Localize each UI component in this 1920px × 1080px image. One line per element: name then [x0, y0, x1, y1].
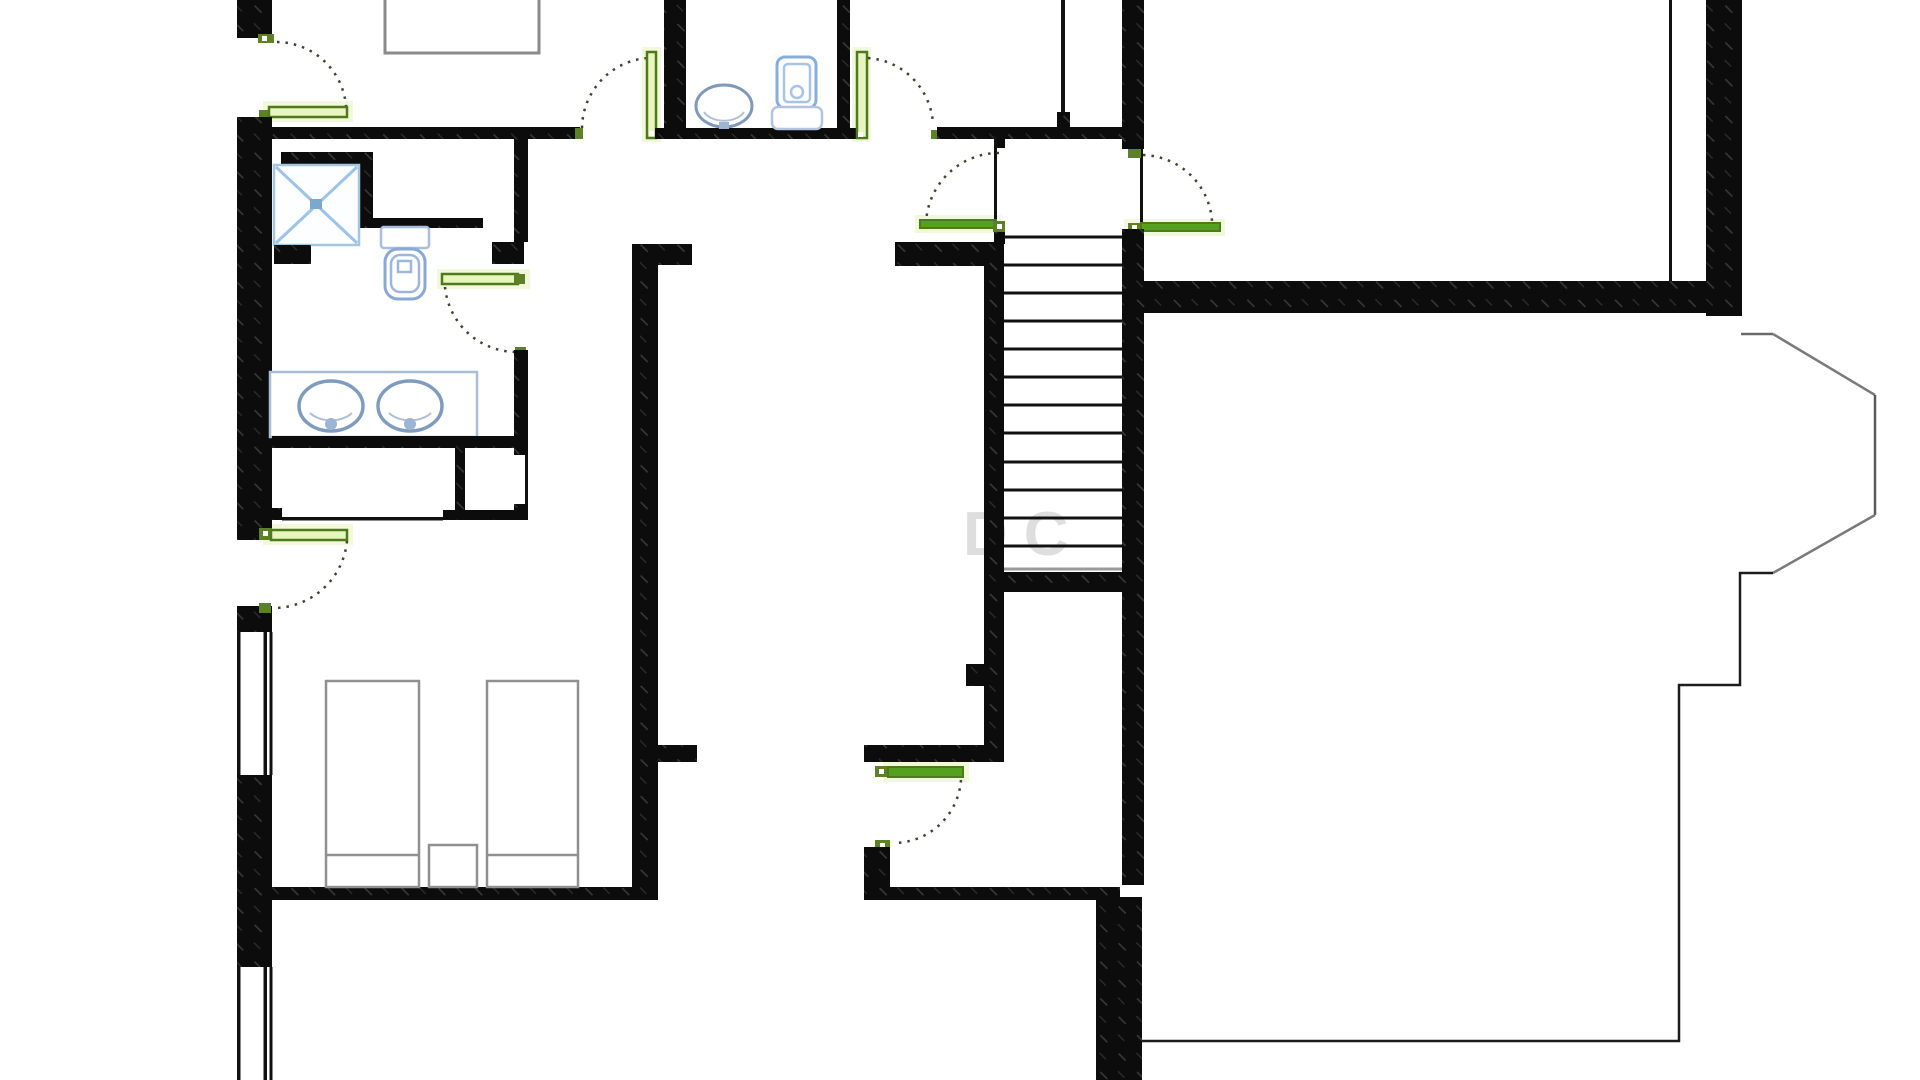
svg-text:DC: DC: [963, 500, 1085, 569]
